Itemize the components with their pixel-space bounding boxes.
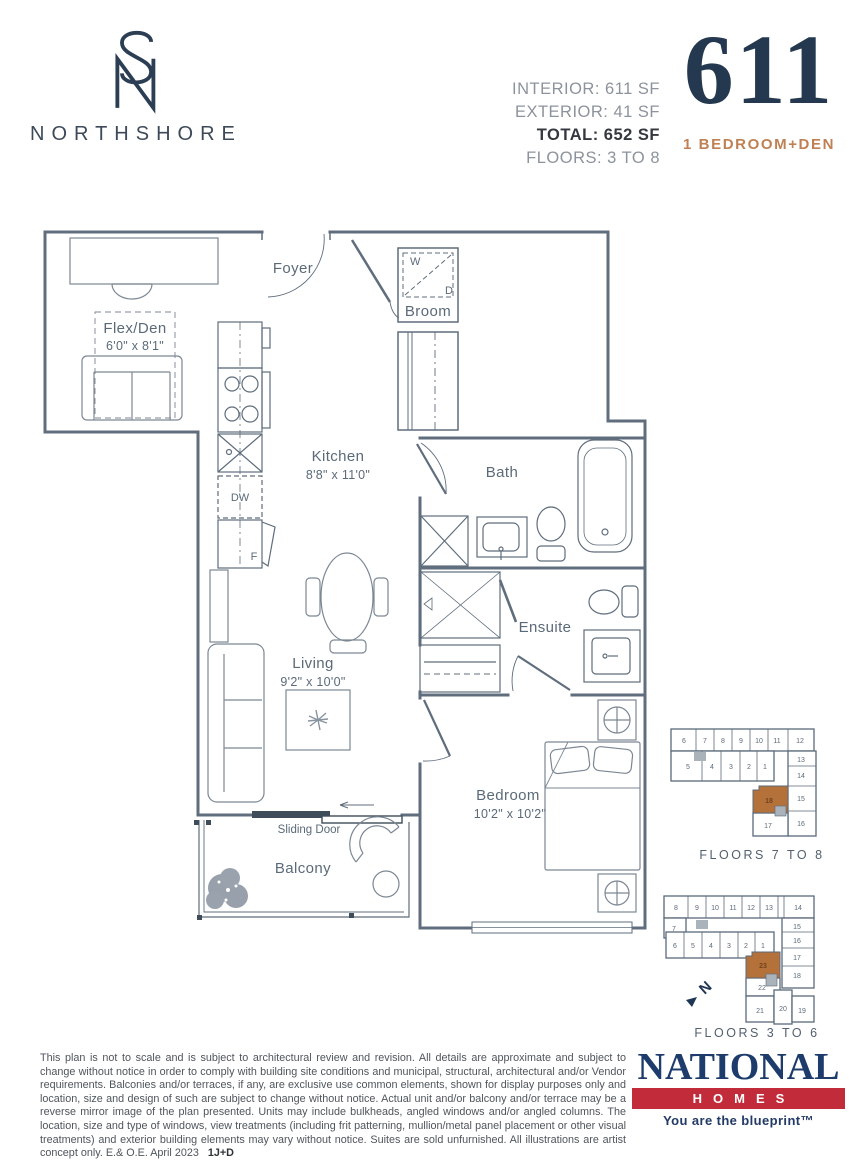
keyplan-b-core (696, 920, 708, 929)
svg-text:9: 9 (739, 738, 743, 745)
svg-text:17: 17 (793, 955, 801, 962)
legal-disclaimer: This plan is not to scale and is subject… (40, 1052, 626, 1161)
sliding-door (252, 802, 402, 823)
svg-text:5: 5 (686, 764, 690, 771)
bedroom-dims: 10'2" x 10'2" (474, 807, 546, 821)
svg-text:16: 16 (797, 821, 805, 828)
living-label: Living (292, 655, 334, 672)
washer-label: W (410, 256, 421, 268)
svg-text:11: 11 (729, 905, 736, 912)
brand-name: NORTHSHORE (30, 123, 240, 146)
svg-text:15: 15 (797, 796, 805, 803)
svg-text:10: 10 (711, 905, 719, 912)
ensuite-label: Ensuite (519, 619, 572, 636)
nightstand-bottom (598, 874, 636, 912)
bedroom-door (423, 700, 450, 761)
brand-block: NORTHSHORE (30, 22, 240, 146)
bed (545, 742, 640, 870)
disclaimer-text: This plan is not to scale and is subject… (40, 1052, 626, 1159)
builder-homes-bar: HOMES (632, 1088, 845, 1109)
keyplan-floors-3-6: 8 9 10 11 12 13 14 7 6 5 4 3 2 1 15 16 1… (652, 884, 860, 1046)
svg-text:12: 12 (747, 905, 755, 912)
keyplan-a-core (694, 752, 706, 761)
svg-text:6: 6 (673, 943, 677, 950)
plan-code: 1J+D (208, 1147, 234, 1159)
svg-text:19: 19 (798, 1008, 806, 1015)
kitchen-counters (218, 322, 275, 568)
svg-text:3: 3 (729, 764, 733, 771)
svg-text:5: 5 (691, 943, 695, 950)
svg-text:11: 11 (773, 738, 780, 745)
north-label: N (696, 978, 715, 998)
keyplan-a-stair (775, 806, 786, 816)
svg-text:14: 14 (797, 773, 805, 780)
sliding-door-label: Sliding Door (278, 824, 341, 836)
svg-text:6: 6 (682, 738, 686, 745)
svg-text:17: 17 (764, 823, 772, 830)
stat-total: TOTAL: 652 SF (430, 124, 660, 147)
builder-name: NATIONAL (632, 1048, 845, 1086)
flexden-dims: 6'0" x 8'1" (106, 339, 164, 353)
flexden-label: Flex/Den (103, 320, 166, 337)
svg-text:13: 13 (797, 757, 805, 764)
svg-text:7: 7 (672, 926, 676, 933)
stat-floors: FLOORS: 3 TO 8 (430, 147, 660, 170)
northshore-monogram-icon (90, 22, 180, 114)
svg-text:4: 4 (709, 943, 713, 950)
bedroom-closet (420, 645, 500, 692)
bath-toilet (537, 507, 565, 541)
ensuite-toilet (589, 590, 619, 614)
bath-fixtures (421, 440, 632, 566)
svg-text:21: 21 (756, 1008, 764, 1015)
svg-text:12: 12 (796, 738, 804, 745)
svg-text:13: 13 (765, 905, 773, 912)
north-arrow-icon: N (686, 978, 715, 1007)
monogram-s (122, 33, 151, 83)
stat-exterior: EXTERIOR: 41 SF (430, 101, 660, 124)
kitchen-dims: 8'8" x 11'0" (306, 468, 370, 482)
bath-label: Bath (486, 464, 518, 481)
dishwasher-label: DW (231, 492, 250, 504)
keyplan-b-caption: FLOORS 3 TO 6 (694, 1026, 819, 1040)
nightstand-top (598, 700, 636, 740)
svg-text:1: 1 (763, 764, 767, 771)
svg-text:4: 4 (710, 764, 714, 771)
dining-set (306, 553, 388, 653)
broom-door (352, 240, 399, 318)
svg-text:7: 7 (703, 738, 707, 745)
unit-identity: 611 1 BEDROOM+DEN (668, 10, 850, 153)
bedroom-window (472, 922, 632, 933)
svg-text:23: 23 (759, 963, 767, 970)
fridge-label: F (251, 551, 258, 563)
balcony-plant (206, 868, 248, 909)
svg-text:15: 15 (793, 924, 801, 931)
foyer-label: Foyer (273, 260, 313, 277)
svg-text:18: 18 (793, 973, 801, 980)
balcony-chair (350, 817, 399, 897)
tv-console (210, 570, 228, 642)
flexden-desk (70, 238, 218, 299)
builder-logo: NATIONAL HOMES You are the blueprint™ (632, 1048, 845, 1128)
coffee-table (286, 690, 350, 750)
ensuite-door (512, 656, 570, 691)
table-plant (308, 710, 328, 730)
svg-text:16: 16 (793, 938, 801, 945)
linen-closet (398, 332, 458, 430)
flexden-loveseat (82, 356, 182, 420)
floorplan-drawing: W D Broom Flex/Den 6'0" x 8'1 (30, 220, 660, 950)
floorplan-page: NORTHSHORE INTERIOR: 611 SF EXTERIOR: 41… (0, 0, 860, 1168)
svg-text:22: 22 (758, 985, 766, 992)
svg-text:10: 10 (755, 738, 763, 745)
stat-interior: INTERIOR: 611 SF (430, 78, 660, 101)
balcony-label: Balcony (275, 860, 331, 877)
unit-number: 611 (668, 10, 850, 130)
builder-tagline: You are the blueprint™ (632, 1113, 845, 1128)
dryer-label: D (445, 285, 453, 297)
svg-text:2: 2 (744, 943, 748, 950)
keyplan-b-outline (664, 896, 814, 1024)
keyplan-a-outline (671, 729, 816, 836)
svg-text:2: 2 (747, 764, 751, 771)
kitchen-label: Kitchen (312, 448, 365, 465)
svg-text:20: 20 (779, 1006, 787, 1013)
door-jambs (262, 232, 330, 240)
keyplan-b-stair (766, 974, 777, 986)
svg-text:14: 14 (794, 905, 802, 912)
svg-text:8: 8 (674, 905, 678, 912)
living-dims: 9'2" x 10'0" (280, 675, 345, 689)
svg-text:3: 3 (727, 943, 731, 950)
svg-text:18: 18 (765, 798, 773, 805)
bedroom-label: Bedroom (476, 787, 540, 804)
svg-text:1: 1 (761, 943, 765, 950)
balcony-table (373, 871, 399, 897)
keyplan-a-caption: FLOORS 7 TO 8 (699, 848, 824, 862)
keyplan-floors-7-8: 6 7 8 9 10 11 12 5 4 3 2 1 13 14 15 16 1… (658, 718, 858, 868)
unit-type: 1 BEDROOM+DEN (668, 136, 850, 153)
sofa (208, 644, 264, 802)
svg-text:9: 9 (695, 905, 699, 912)
svg-text:8: 8 (721, 738, 725, 745)
bath-door (417, 443, 446, 494)
suite-stats: INTERIOR: 611 SF EXTERIOR: 41 SF TOTAL: … (430, 78, 660, 170)
broom-label: Broom (405, 303, 451, 320)
